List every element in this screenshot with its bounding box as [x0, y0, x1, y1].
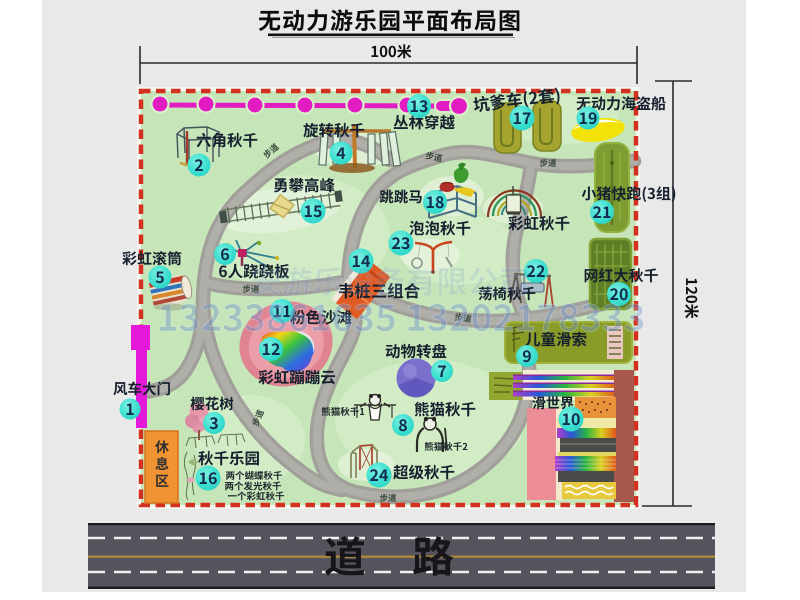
svg-text:10: 10	[562, 406, 581, 430]
svg-text:3: 3	[209, 410, 218, 434]
svg-text:19: 19	[579, 105, 598, 129]
svg-text:15: 15	[304, 198, 323, 222]
svg-text:1: 1	[125, 396, 134, 420]
svg-text:13: 13	[410, 93, 429, 117]
svg-text:无动力游乐园平面布局图: 无动力游乐园平面布局图	[258, 2, 522, 36]
svg-text:彩虹秋千: 彩虹秋千	[508, 212, 570, 234]
svg-text:5: 5	[155, 264, 164, 288]
svg-text:旋转秋千: 旋转秋千	[303, 119, 365, 141]
svg-text:勇攀高峰: 勇攀高峰	[273, 174, 336, 196]
svg-text:风车大门: 风车大门	[113, 378, 171, 399]
svg-text:6: 6	[220, 241, 229, 265]
svg-text:泡泡秋千: 泡泡秋千	[409, 217, 471, 239]
svg-text:2: 2	[194, 152, 203, 176]
svg-text:步道: 步道	[539, 157, 557, 169]
svg-text:超级秋千: 超级秋千	[393, 461, 455, 483]
svg-text:六角秋千: 六角秋千	[196, 129, 258, 151]
svg-text:17: 17	[513, 105, 532, 129]
svg-text:一个彩虹秋千: 一个彩虹秋千	[227, 489, 285, 503]
svg-text:彩虹蹦蹦云: 彩虹蹦蹦云	[258, 366, 336, 388]
svg-text:4: 4	[336, 140, 345, 164]
svg-text:区: 区	[155, 471, 169, 491]
svg-text:24: 24	[370, 462, 389, 486]
svg-text:120米: 120米	[681, 277, 702, 319]
svg-text:7: 7	[437, 358, 446, 382]
svg-text:熊猫秋千1: 熊猫秋千1	[321, 404, 365, 418]
svg-text:道路: 道路	[324, 524, 500, 585]
svg-text:跳跳马: 跳跳马	[379, 186, 423, 207]
svg-text:100米: 100米	[370, 41, 412, 62]
svg-text:步道: 步道	[379, 492, 397, 504]
svg-text:13233861635 13202178333: 13233861635 13202178333	[157, 288, 646, 342]
svg-text:熊猫秋千: 熊猫秋千	[414, 398, 476, 420]
svg-text:16: 16	[199, 465, 218, 489]
svg-text:23: 23	[392, 230, 411, 254]
svg-text:彩虹滚筒: 彩虹滚筒	[122, 248, 182, 269]
svg-text:18: 18	[426, 189, 445, 213]
svg-text:9: 9	[522, 343, 531, 367]
svg-text:8: 8	[398, 412, 407, 436]
svg-text:熊猫秋千2: 熊猫秋千2	[424, 439, 468, 453]
svg-text:21: 21	[593, 199, 612, 223]
